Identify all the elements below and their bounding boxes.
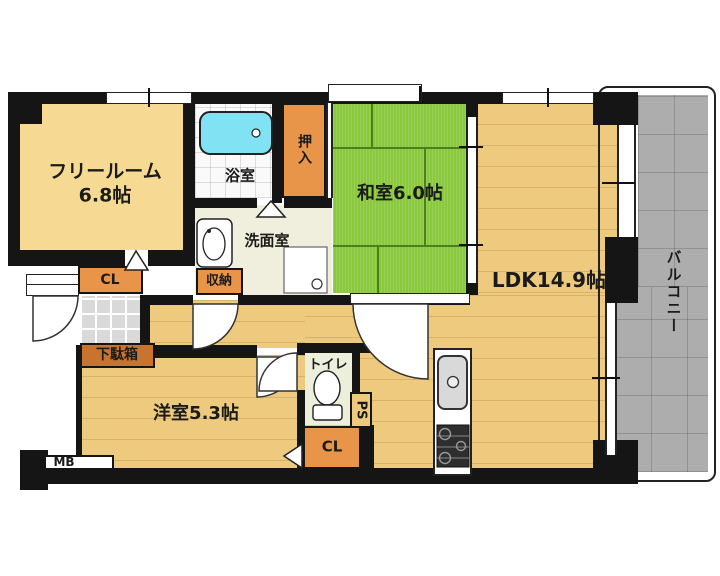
wall-washitsu-ldk-stub-top xyxy=(466,103,478,117)
entry-door-frame-line xyxy=(26,284,79,285)
wall-bath-bottom-a xyxy=(195,198,257,208)
window-top-freeroom xyxy=(106,92,192,104)
wall-bottom xyxy=(22,468,638,484)
wall-balcony-jog xyxy=(605,237,638,303)
partition-oshiire-washitsu xyxy=(326,103,333,198)
free-room-size: 6.8帖 xyxy=(79,187,132,206)
tatami-line xyxy=(333,245,466,247)
ldk-label: LDK14.9帖 xyxy=(492,270,606,290)
wall-bath-bottom-b xyxy=(284,198,332,208)
wall-balcony-corner-top xyxy=(593,92,638,125)
balcony-label: バルコニー xyxy=(666,250,681,335)
partition-washitsu-ldk xyxy=(466,117,478,283)
toilet-label: トイレ xyxy=(308,359,347,372)
wall-genkan-right xyxy=(140,295,150,348)
wall-hall-top-b xyxy=(238,295,353,305)
pipe-space-label: PS xyxy=(355,401,368,420)
kitchen-sink-icon xyxy=(437,355,468,410)
washroom-label: 洗面室 xyxy=(244,234,289,249)
wall-oshiire-left xyxy=(272,103,282,203)
tatami-line xyxy=(333,147,466,149)
closet-south-label: CL xyxy=(322,440,343,455)
entry-door-arc xyxy=(33,296,78,341)
wall-toilet-top xyxy=(297,343,374,353)
window-top-ldk xyxy=(502,92,594,104)
free-room-label: フリールーム xyxy=(48,163,161,182)
tatami-line xyxy=(377,245,379,293)
wall-freeroom-bottom-a xyxy=(8,250,125,266)
window-balcony-lower xyxy=(605,303,617,455)
entry-door-frame xyxy=(26,274,79,296)
room-ldk-upper xyxy=(478,103,617,295)
meter-box-label: MB xyxy=(53,456,74,468)
wall-closet-right xyxy=(360,425,374,470)
closet-entry-label: CL xyxy=(100,273,119,287)
wall-left-upper xyxy=(8,92,20,254)
shoe-cabinet-label: 下駄箱 xyxy=(96,348,138,362)
bathroom-label: 浴室 xyxy=(225,169,255,184)
wall-youshitsu-top xyxy=(150,345,257,358)
tatami-line xyxy=(371,103,373,149)
wall-toilet-right xyxy=(352,343,360,395)
floor-plan: フリールーム 6.8帖 浴室 押入 和室6.0帖 LDK14.9帖 バルコニー … xyxy=(0,0,720,576)
washitsu-label: 和室6.0帖 xyxy=(357,185,443,203)
wall-toilet-left-a xyxy=(297,343,305,355)
oshiire-label: 押入 xyxy=(297,134,311,166)
partition-washitsu-south xyxy=(350,293,470,304)
room-genkan xyxy=(80,296,140,345)
bay-window-washitsu xyxy=(328,84,422,102)
wall-freeroom-right xyxy=(183,103,195,258)
youshitsu-label: 洋室5.3帖 xyxy=(153,405,239,423)
storage-label: 収納 xyxy=(206,275,232,288)
room-hall xyxy=(140,300,305,348)
window-balcony-upper xyxy=(617,125,636,237)
